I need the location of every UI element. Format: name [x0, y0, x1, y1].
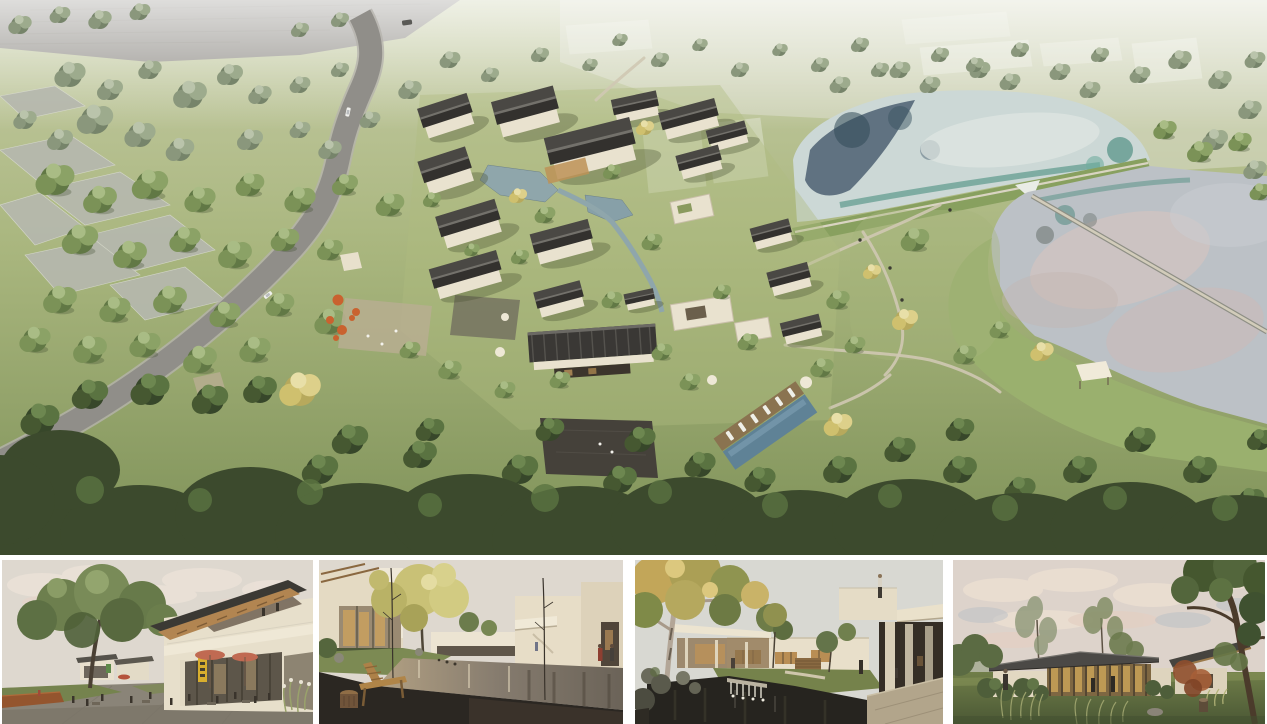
standing-figure [1003, 669, 1008, 690]
orange-umbrella [333, 295, 344, 306]
thumb-waterfall-courtyard [635, 560, 943, 724]
left-pavilion [673, 624, 771, 672]
shade-sail [340, 252, 362, 271]
courtyard-pond-image [319, 560, 623, 724]
dark-path [635, 708, 649, 724]
small-umbrella [118, 675, 130, 680]
interior-figure [1091, 678, 1095, 692]
waterfall-courtyard-image [635, 560, 943, 724]
street-plaza-image [2, 560, 313, 724]
red-coat-figure [598, 648, 603, 661]
rendering-collage [0, 0, 1267, 724]
thumb-courtyard-pond [319, 560, 623, 724]
thumb-lawn-pavilion [953, 560, 1265, 724]
green-sign [106, 664, 111, 673]
stone-wall [284, 652, 313, 710]
wood-slat-wall [795, 658, 821, 671]
thumb-street-plaza [2, 560, 313, 724]
child-figure [38, 690, 41, 696]
lawn-pavilion-image [953, 560, 1265, 724]
hero-aerial-rendering [0, 0, 1267, 555]
aerial-rendering-image [0, 0, 1267, 555]
